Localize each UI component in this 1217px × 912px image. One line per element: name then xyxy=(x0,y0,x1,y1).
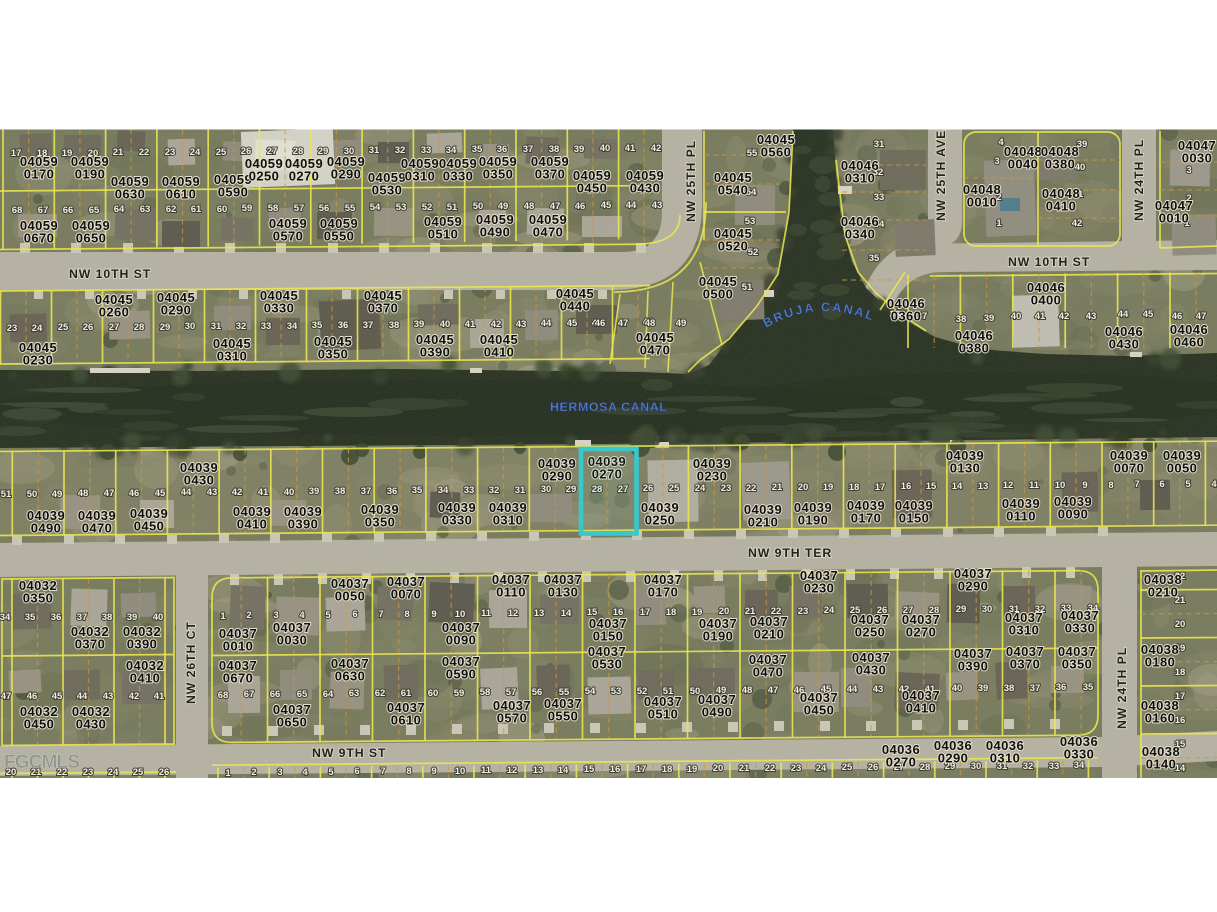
svg-text:40: 40 xyxy=(952,683,963,694)
svg-text:3: 3 xyxy=(277,767,282,778)
svg-text:67: 67 xyxy=(244,689,255,700)
svg-text:30: 30 xyxy=(541,484,552,495)
svg-text:38: 38 xyxy=(389,320,400,331)
svg-text:31: 31 xyxy=(369,145,380,156)
svg-text:65: 65 xyxy=(89,205,100,216)
svg-text:040590290: 040590290 xyxy=(327,154,365,182)
svg-text:22: 22 xyxy=(139,147,150,158)
svg-text:67: 67 xyxy=(38,205,49,216)
svg-text:9: 9 xyxy=(431,609,436,620)
svg-text:66: 66 xyxy=(63,205,74,216)
svg-text:42: 42 xyxy=(651,143,662,154)
svg-text:24: 24 xyxy=(32,323,43,334)
svg-text:040370510: 040370510 xyxy=(644,694,682,722)
svg-text:52: 52 xyxy=(422,202,433,213)
svg-text:20: 20 xyxy=(1175,619,1186,630)
svg-text:44: 44 xyxy=(847,684,858,695)
svg-text:040450560: 040450560 xyxy=(757,132,795,160)
svg-text:50: 50 xyxy=(473,201,484,212)
svg-text:040370050: 040370050 xyxy=(331,576,369,604)
svg-text:040370550: 040370550 xyxy=(544,696,582,724)
svg-text:5: 5 xyxy=(1185,479,1191,490)
svg-text:17: 17 xyxy=(640,607,651,618)
svg-text:35: 35 xyxy=(25,612,36,623)
svg-text:040460360: 040460360 xyxy=(887,296,925,324)
svg-text:040390230: 040390230 xyxy=(693,456,731,484)
svg-text:1: 1 xyxy=(996,218,1002,229)
svg-text:11: 11 xyxy=(1029,480,1040,491)
svg-text:15: 15 xyxy=(584,764,595,775)
svg-text:040380210: 040380210 xyxy=(1144,572,1182,600)
svg-text:19: 19 xyxy=(687,764,698,775)
svg-text:41: 41 xyxy=(625,143,636,154)
svg-text:6: 6 xyxy=(352,609,357,620)
svg-text:12: 12 xyxy=(507,765,518,776)
svg-text:2: 2 xyxy=(251,767,256,778)
svg-text:28: 28 xyxy=(920,762,931,773)
svg-text:44: 44 xyxy=(77,691,88,702)
svg-text:040480410: 040480410 xyxy=(1042,186,1080,214)
svg-text:040370470: 040370470 xyxy=(749,652,787,680)
svg-text:040370170: 040370170 xyxy=(644,572,682,600)
svg-text:39: 39 xyxy=(978,683,989,694)
svg-text:040470010: 040470010 xyxy=(1155,198,1193,226)
svg-text:040460460: 040460460 xyxy=(1170,322,1208,350)
svg-text:20: 20 xyxy=(798,482,809,493)
svg-text:040370010: 040370010 xyxy=(219,626,257,654)
svg-text:47: 47 xyxy=(1196,311,1207,322)
svg-text:040390250: 040390250 xyxy=(641,500,679,528)
svg-text:38: 38 xyxy=(335,486,346,497)
svg-text:040590250: 040590250 xyxy=(245,156,283,184)
svg-text:23: 23 xyxy=(721,483,732,494)
svg-text:040590190: 040590190 xyxy=(71,154,109,182)
svg-text:45: 45 xyxy=(1143,309,1154,320)
svg-text:58: 58 xyxy=(268,203,279,214)
svg-text:48: 48 xyxy=(524,201,535,212)
svg-text:47: 47 xyxy=(768,685,779,696)
svg-text:040460380: 040460380 xyxy=(955,328,993,356)
svg-text:040370130: 040370130 xyxy=(544,572,582,600)
svg-text:1: 1 xyxy=(225,768,231,779)
svg-text:040590610: 040590610 xyxy=(162,174,200,202)
svg-text:040450260: 040450260 xyxy=(95,292,133,320)
svg-text:040390470: 040390470 xyxy=(78,508,116,536)
svg-text:43: 43 xyxy=(873,684,884,695)
svg-text:NW 26TH CT: NW 26TH CT xyxy=(184,621,198,704)
svg-text:NW 10TH ST: NW 10TH ST xyxy=(1008,255,1090,269)
svg-text:6: 6 xyxy=(354,766,359,777)
svg-text:040370490: 040370490 xyxy=(698,692,736,720)
svg-text:25: 25 xyxy=(669,483,680,494)
svg-text:19: 19 xyxy=(823,482,834,493)
svg-text:40: 40 xyxy=(284,487,295,498)
svg-text:37: 37 xyxy=(77,612,88,623)
svg-text:040390450: 040390450 xyxy=(130,506,168,534)
svg-text:32: 32 xyxy=(395,145,406,156)
svg-text:040370530: 040370530 xyxy=(588,644,626,672)
svg-text:6: 6 xyxy=(1159,479,1164,490)
svg-text:33: 33 xyxy=(421,145,432,156)
svg-text:50: 50 xyxy=(27,489,38,500)
svg-text:40: 40 xyxy=(600,143,611,154)
svg-text:32: 32 xyxy=(236,321,247,332)
svg-text:42: 42 xyxy=(491,319,502,330)
svg-text:9: 9 xyxy=(431,766,436,777)
svg-text:040450290: 040450290 xyxy=(157,290,195,318)
svg-text:040370370: 040370370 xyxy=(1006,644,1044,672)
svg-text:52: 52 xyxy=(748,247,759,258)
svg-text:NW 9TH TER: NW 9TH TER xyxy=(748,546,832,560)
svg-text:8: 8 xyxy=(406,766,411,777)
svg-text:040390050: 040390050 xyxy=(1163,448,1201,476)
svg-text:12: 12 xyxy=(508,608,519,619)
svg-text:040320370: 040320370 xyxy=(71,624,109,652)
svg-text:13: 13 xyxy=(533,765,544,776)
svg-text:040470030: 040470030 xyxy=(1178,138,1216,166)
svg-text:17: 17 xyxy=(875,482,886,493)
svg-text:040450520: 040450520 xyxy=(714,226,752,254)
svg-text:44: 44 xyxy=(541,318,552,329)
svg-text:40: 40 xyxy=(153,612,164,623)
svg-text:040390310: 040390310 xyxy=(489,500,527,528)
svg-text:040590310: 040590310 xyxy=(401,156,439,184)
svg-text:040450470: 040450470 xyxy=(636,330,674,358)
svg-text:35: 35 xyxy=(869,253,880,264)
svg-text:040370630: 040370630 xyxy=(331,656,369,684)
svg-text:29: 29 xyxy=(566,484,577,495)
svg-text:040370590: 040370590 xyxy=(442,654,480,682)
svg-text:NW 25TH AVE: NW 25TH AVE xyxy=(934,130,948,221)
svg-text:51: 51 xyxy=(447,202,458,213)
svg-text:42: 42 xyxy=(1059,311,1070,322)
svg-text:10: 10 xyxy=(1055,480,1066,491)
svg-text:43: 43 xyxy=(652,200,663,211)
svg-text:040450350: 040450350 xyxy=(314,334,352,362)
svg-text:040370610: 040370610 xyxy=(387,700,425,728)
svg-text:040390190: 040390190 xyxy=(794,500,832,528)
svg-text:040390410: 040390410 xyxy=(233,504,271,532)
svg-text:49: 49 xyxy=(498,201,509,212)
svg-text:040380180: 040380180 xyxy=(1141,642,1179,670)
svg-text:3: 3 xyxy=(994,156,999,167)
svg-text:040390170: 040390170 xyxy=(847,498,885,526)
svg-text:59: 59 xyxy=(454,688,465,699)
svg-text:10: 10 xyxy=(455,766,466,777)
svg-text:33: 33 xyxy=(874,192,885,203)
svg-text:040590350: 040590350 xyxy=(479,154,517,182)
svg-text:43: 43 xyxy=(516,319,527,330)
svg-text:040390130: 040390130 xyxy=(946,448,984,476)
svg-text:64: 64 xyxy=(323,689,334,700)
svg-text:42: 42 xyxy=(232,487,243,498)
svg-text:040380160: 040380160 xyxy=(1141,698,1179,726)
svg-text:68: 68 xyxy=(12,205,23,216)
svg-text:31: 31 xyxy=(874,139,885,150)
svg-text:18: 18 xyxy=(1175,667,1186,678)
svg-text:68: 68 xyxy=(218,690,229,701)
svg-text:40: 40 xyxy=(1011,311,1022,322)
svg-text:54: 54 xyxy=(370,202,381,213)
svg-text:040370230: 040370230 xyxy=(800,568,838,596)
svg-text:65: 65 xyxy=(297,689,308,700)
svg-text:25: 25 xyxy=(842,762,853,773)
svg-text:040590470: 040590470 xyxy=(529,212,567,240)
svg-text:60: 60 xyxy=(217,204,228,215)
svg-text:45: 45 xyxy=(601,200,612,211)
svg-text:34: 34 xyxy=(1074,760,1085,771)
svg-text:59: 59 xyxy=(242,203,253,214)
svg-text:040370670: 040370670 xyxy=(219,658,257,686)
svg-text:13: 13 xyxy=(534,608,545,619)
svg-text:31: 31 xyxy=(211,321,222,332)
svg-text:040320350: 040320350 xyxy=(19,578,57,606)
svg-text:39: 39 xyxy=(984,313,995,324)
svg-text:24: 24 xyxy=(190,147,201,158)
svg-text:040390070: 040390070 xyxy=(1110,448,1148,476)
svg-text:040480010: 040480010 xyxy=(963,182,1001,210)
svg-text:040590630: 040590630 xyxy=(111,174,149,202)
svg-text:14: 14 xyxy=(952,481,963,492)
svg-text:18: 18 xyxy=(666,607,677,618)
svg-text:040450540: 040450540 xyxy=(714,170,752,198)
svg-text:28: 28 xyxy=(134,322,145,333)
svg-text:040320430: 040320430 xyxy=(72,704,110,732)
svg-text:30: 30 xyxy=(982,604,993,615)
svg-text:36: 36 xyxy=(51,612,62,623)
svg-text:040370450: 040370450 xyxy=(800,690,838,718)
svg-text:040370570: 040370570 xyxy=(493,698,531,726)
svg-text:63: 63 xyxy=(140,204,151,215)
svg-text:040370430: 040370430 xyxy=(852,650,890,678)
svg-text:21: 21 xyxy=(113,147,124,158)
svg-text:8: 8 xyxy=(404,609,409,620)
svg-text:34: 34 xyxy=(0,612,11,623)
svg-text:56: 56 xyxy=(532,687,543,698)
svg-text:35: 35 xyxy=(1083,682,1094,693)
svg-text:040390150: 040390150 xyxy=(895,498,933,526)
svg-text:3: 3 xyxy=(1186,165,1191,176)
svg-text:66: 66 xyxy=(270,689,281,700)
svg-text:040590650: 040590650 xyxy=(72,218,110,246)
svg-text:37: 37 xyxy=(361,486,372,497)
svg-text:39: 39 xyxy=(309,486,320,497)
svg-text:57: 57 xyxy=(294,203,305,214)
svg-text:040320450: 040320450 xyxy=(20,704,58,732)
svg-text:040370250: 040370250 xyxy=(851,612,889,640)
svg-text:040450410: 040450410 xyxy=(480,332,518,360)
svg-text:2: 2 xyxy=(246,610,251,621)
svg-text:040390330: 040390330 xyxy=(438,500,476,528)
svg-text:46: 46 xyxy=(1172,311,1183,322)
svg-text:040390490: 040390490 xyxy=(27,508,65,536)
svg-text:62: 62 xyxy=(375,688,386,699)
svg-text:040460340: 040460340 xyxy=(841,214,879,242)
svg-text:25: 25 xyxy=(58,322,69,333)
svg-text:42: 42 xyxy=(1072,218,1083,229)
svg-text:29: 29 xyxy=(956,604,967,615)
svg-text:FGCMLS: FGCMLS xyxy=(4,752,80,773)
svg-text:14: 14 xyxy=(561,608,572,619)
svg-text:45: 45 xyxy=(567,318,578,329)
svg-text:040390390: 040390390 xyxy=(284,504,322,532)
svg-text:040390110: 040390110 xyxy=(1002,496,1040,524)
svg-text:040590370: 040590370 xyxy=(531,154,569,182)
svg-text:040450390: 040450390 xyxy=(416,332,454,360)
svg-text:040360330: 040360330 xyxy=(1060,734,1098,762)
svg-text:11: 11 xyxy=(481,608,492,619)
svg-text:39: 39 xyxy=(574,144,585,155)
svg-text:45: 45 xyxy=(52,691,63,702)
svg-text:040360290: 040360290 xyxy=(934,738,972,766)
svg-text:040460310: 040460310 xyxy=(841,158,879,186)
svg-text:32: 32 xyxy=(1023,761,1034,772)
svg-text:60: 60 xyxy=(428,688,439,699)
svg-text:33: 33 xyxy=(261,321,272,332)
svg-text:22: 22 xyxy=(765,763,776,774)
svg-text:49: 49 xyxy=(52,489,63,500)
svg-text:23: 23 xyxy=(791,763,802,774)
svg-text:040450330: 040450330 xyxy=(260,288,298,316)
svg-text:46: 46 xyxy=(27,691,38,702)
svg-text:44: 44 xyxy=(1118,309,1129,320)
svg-text:040370110: 040370110 xyxy=(492,572,530,600)
svg-text:57: 57 xyxy=(506,687,517,698)
svg-text:16: 16 xyxy=(1175,715,1186,726)
svg-text:040590450: 040590450 xyxy=(573,168,611,196)
svg-text:HERMOSA CANAL: HERMOSA CANAL xyxy=(550,400,667,414)
svg-text:040370330: 040370330 xyxy=(1061,608,1099,636)
svg-text:18: 18 xyxy=(849,482,860,493)
svg-text:26: 26 xyxy=(868,762,879,773)
svg-text:040590430: 040590430 xyxy=(626,168,664,196)
svg-text:040460400: 040460400 xyxy=(1027,280,1065,308)
svg-text:NW 25TH PL: NW 25TH PL xyxy=(684,140,698,222)
svg-text:NW 9TH ST: NW 9TH ST xyxy=(312,746,386,760)
svg-text:49: 49 xyxy=(676,318,687,329)
svg-text:41: 41 xyxy=(465,319,476,330)
svg-text:47: 47 xyxy=(1,691,12,702)
svg-text:51: 51 xyxy=(742,282,753,293)
svg-text:040370210: 040370210 xyxy=(750,614,788,642)
svg-text:040590670: 040590670 xyxy=(20,218,58,246)
svg-text:040370030: 040370030 xyxy=(273,620,311,648)
svg-text:40: 40 xyxy=(1075,162,1086,173)
svg-text:040390430: 040390430 xyxy=(180,460,218,488)
svg-text:24: 24 xyxy=(695,483,706,494)
svg-text:53: 53 xyxy=(396,202,407,213)
svg-text:040450230: 040450230 xyxy=(19,340,57,368)
svg-text:43: 43 xyxy=(207,487,218,498)
svg-text:48: 48 xyxy=(645,318,656,329)
svg-text:23: 23 xyxy=(165,147,176,158)
svg-text:040590550: 040590550 xyxy=(320,216,358,244)
svg-text:53: 53 xyxy=(611,686,622,697)
svg-text:040370310: 040370310 xyxy=(1005,610,1043,638)
svg-text:24: 24 xyxy=(108,767,119,778)
svg-text:40: 40 xyxy=(440,319,451,330)
svg-text:040590570: 040590570 xyxy=(269,216,307,244)
svg-text:20: 20 xyxy=(713,763,724,774)
svg-text:040360310: 040360310 xyxy=(986,738,1024,766)
svg-text:040380140: 040380140 xyxy=(1142,744,1180,772)
svg-text:040450440: 040450440 xyxy=(556,286,594,314)
svg-text:34: 34 xyxy=(287,321,298,332)
svg-text:040370650: 040370650 xyxy=(273,702,311,730)
svg-text:7: 7 xyxy=(1134,479,1139,490)
svg-text:48: 48 xyxy=(742,685,753,696)
svg-text:36: 36 xyxy=(338,320,349,331)
svg-text:040590490: 040590490 xyxy=(476,212,514,240)
svg-text:040360270: 040360270 xyxy=(882,742,920,770)
svg-text:24: 24 xyxy=(816,763,827,774)
svg-text:7: 7 xyxy=(380,766,385,777)
svg-text:25: 25 xyxy=(133,767,144,778)
svg-text:12: 12 xyxy=(1003,480,1014,491)
svg-text:040590590: 040590590 xyxy=(214,172,252,200)
svg-text:37: 37 xyxy=(1030,683,1041,694)
svg-text:26: 26 xyxy=(643,483,654,494)
svg-text:35: 35 xyxy=(312,320,323,331)
svg-text:040320410: 040320410 xyxy=(126,658,164,686)
svg-text:4: 4 xyxy=(302,767,308,778)
svg-text:23: 23 xyxy=(83,767,94,778)
svg-text:040590330: 040590330 xyxy=(439,156,477,184)
svg-text:34: 34 xyxy=(446,145,457,156)
svg-text:18: 18 xyxy=(662,764,673,775)
svg-text:040370390: 040370390 xyxy=(954,646,992,674)
svg-text:41: 41 xyxy=(258,487,269,498)
svg-text:61: 61 xyxy=(401,688,412,699)
svg-text:38: 38 xyxy=(956,314,967,325)
svg-text:46: 46 xyxy=(129,488,140,499)
svg-text:32: 32 xyxy=(489,485,500,496)
svg-text:58: 58 xyxy=(480,687,491,698)
svg-text:44: 44 xyxy=(181,487,192,498)
svg-text:29: 29 xyxy=(160,322,171,333)
svg-text:22: 22 xyxy=(746,483,757,494)
svg-text:040370270: 040370270 xyxy=(902,612,940,640)
svg-text:040450310: 040450310 xyxy=(213,336,251,364)
svg-text:43: 43 xyxy=(1086,311,1097,322)
svg-text:040370350: 040370350 xyxy=(1058,644,1096,672)
svg-text:54: 54 xyxy=(585,686,596,697)
svg-text:040590530: 040590530 xyxy=(368,170,406,198)
svg-text:64: 64 xyxy=(114,204,125,215)
svg-text:040320390: 040320390 xyxy=(123,624,161,652)
svg-text:040390350: 040390350 xyxy=(361,502,399,530)
svg-text:26: 26 xyxy=(83,322,94,333)
svg-text:47: 47 xyxy=(618,318,629,329)
svg-text:040390210: 040390210 xyxy=(744,502,782,530)
svg-text:47: 47 xyxy=(104,488,115,499)
svg-text:13: 13 xyxy=(978,481,989,492)
svg-text:30: 30 xyxy=(971,761,982,772)
svg-text:040370410: 040370410 xyxy=(902,688,940,716)
svg-text:30: 30 xyxy=(185,321,196,332)
svg-text:42: 42 xyxy=(129,691,140,702)
svg-text:15: 15 xyxy=(926,481,937,492)
svg-text:5: 5 xyxy=(328,767,334,778)
svg-text:NW 24TH PL: NW 24TH PL xyxy=(1132,139,1146,221)
svg-text:040590170: 040590170 xyxy=(20,154,58,182)
svg-text:55: 55 xyxy=(345,203,356,214)
svg-text:8: 8 xyxy=(1108,480,1113,491)
svg-text:16: 16 xyxy=(610,764,621,775)
svg-text:040370190: 040370190 xyxy=(699,616,737,644)
svg-text:040480380: 040480380 xyxy=(1041,144,1079,172)
svg-text:23: 23 xyxy=(798,606,809,617)
